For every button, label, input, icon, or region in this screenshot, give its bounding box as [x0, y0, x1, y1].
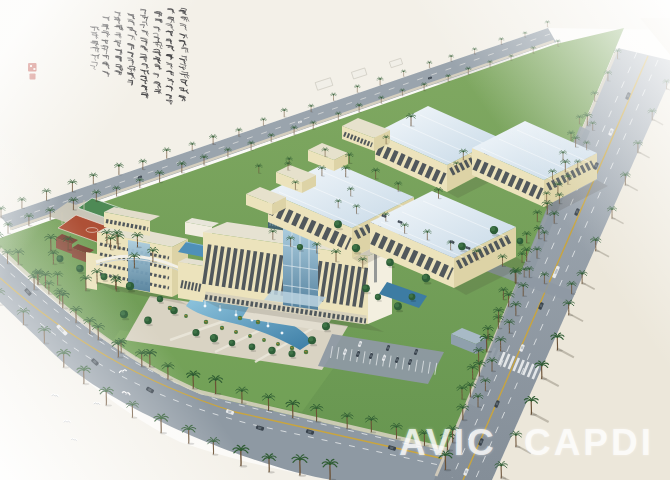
- rendering-canvas: [0, 0, 670, 480]
- architectural-rendering: AVIC CAPDI: [0, 0, 670, 480]
